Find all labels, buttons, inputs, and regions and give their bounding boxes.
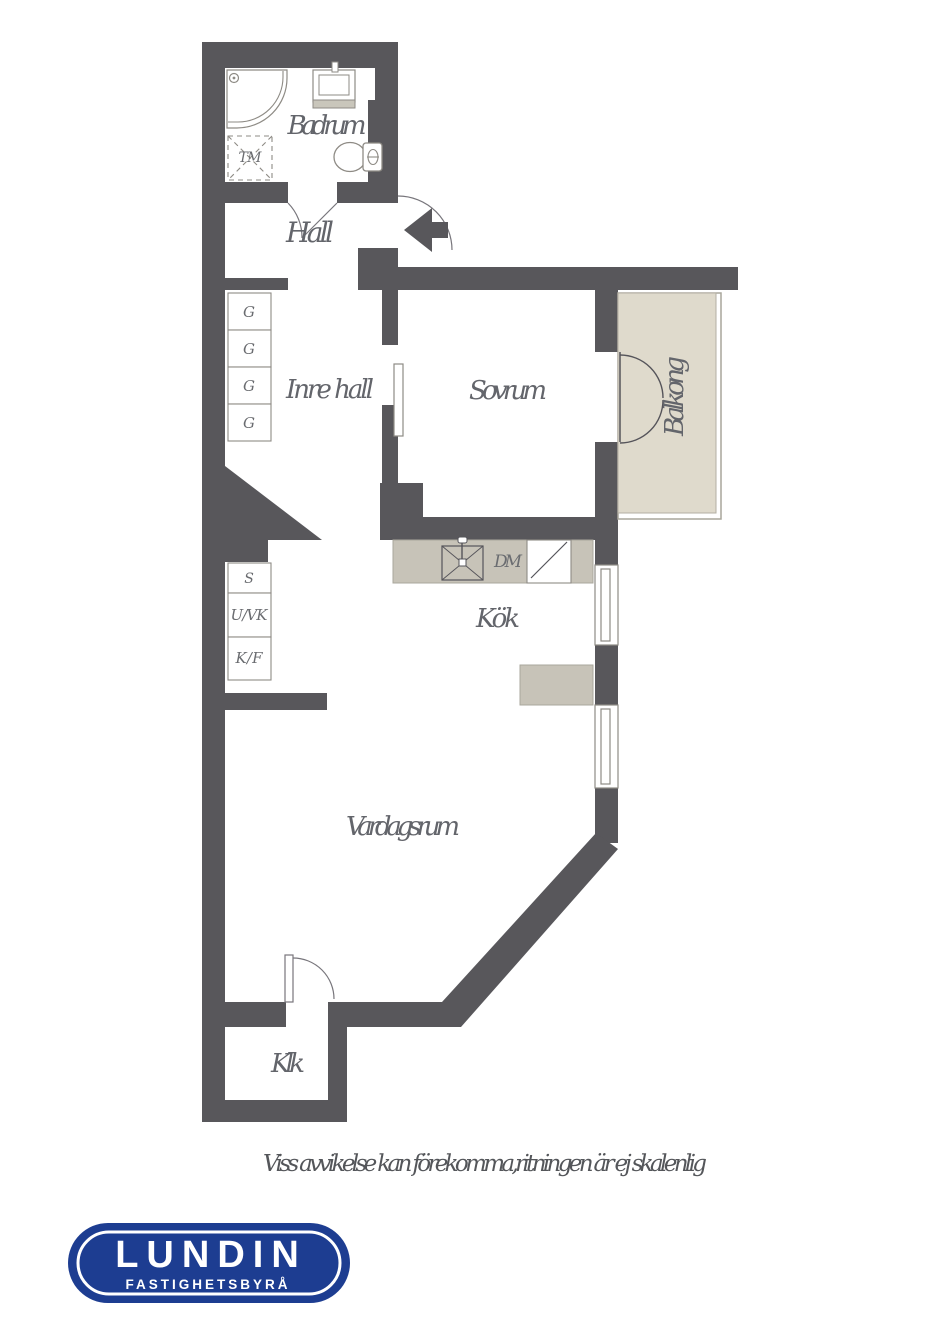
wall-top-bathroom: [202, 42, 398, 68]
wardrobe-label-3: G: [243, 377, 255, 395]
wall-right-kok-a: [595, 540, 618, 565]
washbasin-bowl: [319, 75, 349, 95]
wall-diagonal-bottom-right: [330, 833, 618, 1027]
floorplan-page: TM DM G G G G S U/VK K/F Badrum Hall Inr…: [0, 0, 940, 1330]
cabinet-s-label: S: [244, 571, 254, 587]
wardrobe-label-1: G: [243, 303, 255, 321]
wall-bottom-left-of-klk-door: [225, 1002, 286, 1027]
entrance-arrow-icon: [404, 208, 448, 252]
wall-balcony-pier-top: [595, 290, 618, 352]
wardrobe-label-4: G: [243, 414, 255, 432]
washbasin-faucet-icon: [332, 62, 338, 72]
doors: [285, 196, 452, 1002]
room-label-kok: Kök: [475, 604, 520, 634]
room-label-balkong: Balkong: [660, 356, 690, 437]
wall-sovrum-kok: [383, 517, 618, 540]
wall-wedge: [225, 466, 322, 540]
kitchen-counter-lower: [520, 665, 593, 705]
wall-bathroom-bottom-right: [337, 182, 398, 203]
wall-top-main: [358, 267, 738, 290]
stove-icon: [527, 540, 571, 583]
room-label-sovrum: Sovrum: [469, 376, 547, 406]
cabinet-uvk-label: U/VK: [231, 606, 269, 624]
room-labels: Badrum Hall Inre hall Sovrum Balkong Kök…: [270, 111, 690, 1079]
window-vardagsrum-frame: [601, 709, 610, 784]
washbasin-shelf: [313, 100, 355, 108]
logo-brand-text: LUNDIN: [115, 1234, 307, 1276]
room-label-hall: Hall: [285, 216, 334, 249]
wall-sovrum-left-upper: [382, 290, 398, 345]
fixture-labels: TM DM G G G G S U/VK K/F: [231, 150, 523, 667]
wall-kok-vardagsrum-stub: [225, 693, 327, 710]
wall-right-vardagsrum: [595, 788, 618, 843]
cabinet-kf-label: K/F: [235, 649, 264, 667]
logo-tagline-text: FASTIGHETSBYRÅ: [125, 1277, 290, 1292]
wall-klk-bottom: [202, 1100, 347, 1122]
wall-hall-inrehall: [202, 278, 288, 290]
toilet-bowl-icon: [334, 143, 366, 172]
sovrum-sliding-door: [394, 364, 403, 436]
floorplan-drawing: TM DM G G G G S U/VK K/F Badrum Hall Inr…: [0, 0, 940, 1330]
wardrobe-label-2: G: [243, 340, 255, 358]
wall-left-outer: [202, 42, 225, 1122]
room-label-inre-hall: Inre hall: [285, 375, 374, 405]
wall-bathroom-bottom-left: [225, 182, 288, 203]
wall-wedge-foot: [225, 540, 268, 562]
window-kok-frame: [601, 569, 610, 641]
washing-machine-label: TM: [239, 150, 263, 166]
kitchen-sink-drain: [459, 559, 466, 566]
klk-door-leaf: [285, 955, 293, 1002]
room-label-klk: Klk: [270, 1049, 305, 1079]
room-label-vardagsrum: Vardagsrum: [346, 812, 460, 842]
dishwasher-label: DM: [493, 552, 523, 572]
disclaimer-text: Viss avvikelse kan förekomma,ritningen ä…: [263, 1151, 707, 1177]
kitchen-faucet-icon: [458, 537, 467, 543]
klk-door-swing: [293, 958, 334, 999]
wall-bathroom-right-upper: [375, 42, 398, 102]
lundin-logo: LUNDIN FASTIGHETSBYRÅ: [68, 1223, 350, 1303]
wall-right-kok-b: [595, 645, 618, 705]
wall-balcony-pier-bottom: [595, 442, 618, 517]
shower-head-dot: [233, 77, 236, 80]
room-label-badrum: Badrum: [287, 111, 367, 141]
